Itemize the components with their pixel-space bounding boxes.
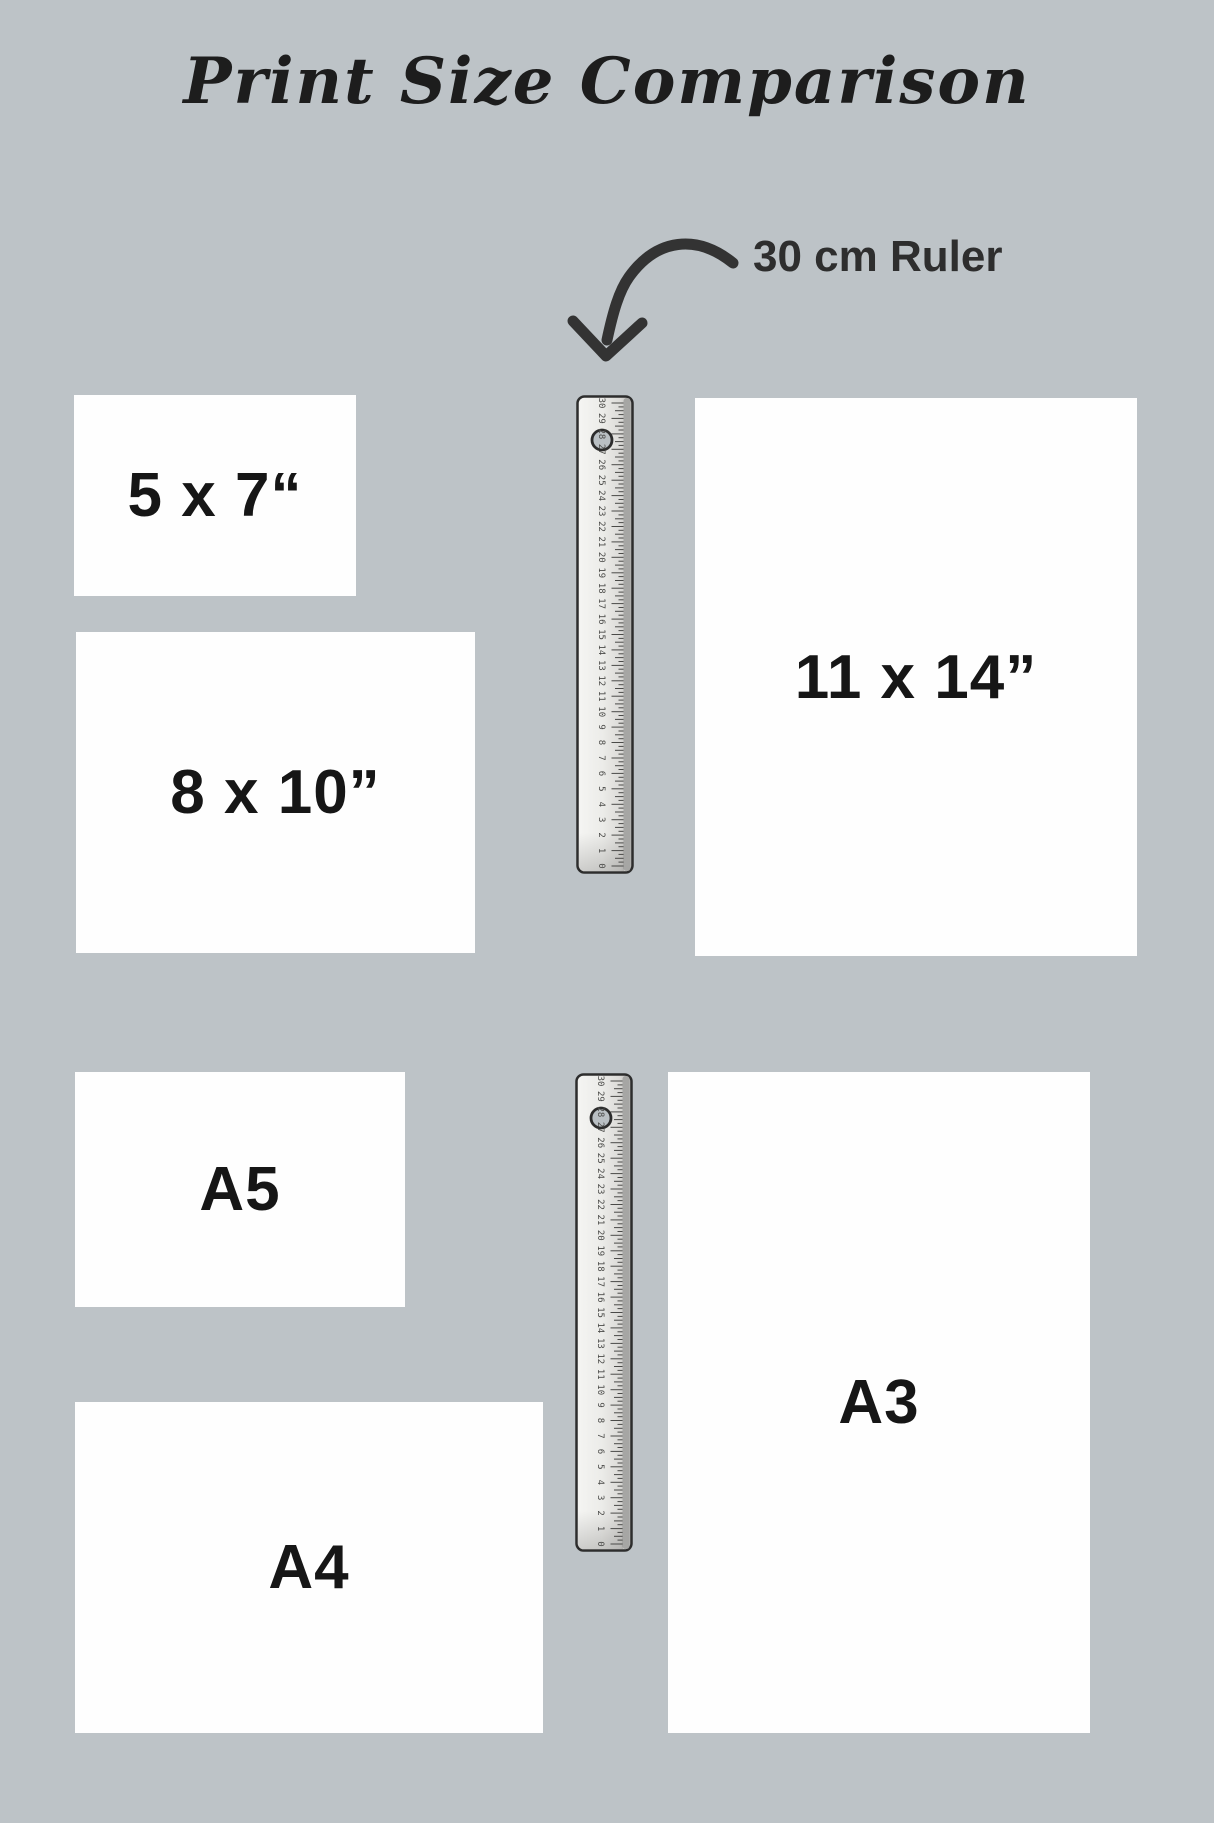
svg-text:28: 28 [596,428,606,439]
svg-text:5: 5 [596,786,606,791]
svg-text:25: 25 [595,1153,605,1164]
ruler-30cm-bottom: 0123456789101112131415161718192021222324… [575,1073,633,1552]
svg-text:17: 17 [596,598,606,609]
svg-text:25: 25 [596,475,606,486]
svg-text:10: 10 [596,706,606,717]
print-label-5x7: 5 x 7“ [128,460,303,531]
print-rect-8x10: 8 x 10” [76,632,475,953]
svg-text:24: 24 [596,490,606,501]
page-title: Print Size Comparison [0,44,1214,119]
svg-text:12: 12 [596,675,606,686]
svg-text:20: 20 [596,552,606,563]
ruler-callout-label: 30 cm Ruler [753,232,1002,282]
print-rect-a3: A3 [668,1072,1090,1733]
svg-text:14: 14 [596,644,606,655]
svg-text:18: 18 [595,1261,605,1272]
svg-text:7: 7 [595,1433,605,1438]
svg-text:29: 29 [595,1091,605,1102]
ruler-edge-band [624,398,631,871]
svg-text:0: 0 [595,1541,605,1546]
svg-text:17: 17 [595,1276,605,1287]
svg-text:7: 7 [596,755,606,760]
svg-text:14: 14 [595,1322,605,1333]
svg-text:12: 12 [595,1353,605,1364]
svg-text:30: 30 [595,1076,605,1087]
svg-text:30: 30 [596,398,606,409]
svg-text:13: 13 [596,660,606,671]
svg-text:18: 18 [596,583,606,594]
svg-text:2: 2 [596,832,606,837]
svg-text:24: 24 [595,1168,605,1179]
svg-text:28: 28 [595,1106,605,1117]
print-rect-11x14: 11 x 14” [695,398,1137,956]
svg-text:6: 6 [595,1449,605,1454]
svg-text:4: 4 [595,1480,605,1485]
svg-text:8: 8 [596,740,606,745]
svg-text:26: 26 [595,1137,605,1148]
svg-text:29: 29 [596,413,606,424]
svg-text:21: 21 [595,1214,605,1225]
svg-text:15: 15 [596,629,606,640]
print-rect-a4: A4 [75,1402,543,1733]
print-label-8x10: 8 x 10” [170,757,380,828]
print-rect-a5: A5 [75,1072,405,1307]
svg-text:23: 23 [596,506,606,517]
svg-text:19: 19 [596,567,606,578]
print-label-11x14: 11 x 14” [795,642,1037,713]
print-label-a5: A5 [199,1154,280,1225]
svg-text:16: 16 [596,614,606,625]
svg-text:20: 20 [595,1230,605,1241]
svg-text:1: 1 [595,1526,605,1531]
print-label-a3: A3 [838,1367,919,1438]
svg-text:2: 2 [595,1510,605,1515]
svg-text:4: 4 [596,802,606,807]
svg-text:1: 1 [596,848,606,853]
print-rect-5x7: 5 x 7“ [74,395,356,596]
svg-text:13: 13 [595,1338,605,1349]
svg-text:6: 6 [596,771,606,776]
svg-text:27: 27 [595,1122,605,1133]
svg-text:26: 26 [596,459,606,470]
svg-text:8: 8 [595,1418,605,1423]
print-size-comparison-canvas: Print Size Comparison 30 cm Ruler 012 [0,0,1214,1823]
svg-text:3: 3 [596,817,606,822]
svg-text:22: 22 [596,521,606,532]
svg-text:5: 5 [595,1464,605,1469]
svg-text:10: 10 [595,1384,605,1395]
svg-text:27: 27 [596,444,606,455]
ruler-30cm-top: 0123456789101112131415161718192021222324… [576,395,634,874]
svg-text:22: 22 [595,1199,605,1210]
svg-text:9: 9 [595,1402,605,1407]
svg-text:3: 3 [595,1495,605,1500]
svg-text:0: 0 [596,863,606,868]
svg-text:21: 21 [596,536,606,547]
svg-text:23: 23 [595,1184,605,1195]
svg-text:19: 19 [595,1245,605,1256]
ruler-edge-band [623,1076,630,1549]
svg-text:11: 11 [596,691,606,702]
svg-text:9: 9 [596,724,606,729]
svg-text:16: 16 [595,1292,605,1303]
svg-text:15: 15 [595,1307,605,1318]
print-label-a4: A4 [268,1532,349,1603]
svg-text:11: 11 [595,1369,605,1380]
